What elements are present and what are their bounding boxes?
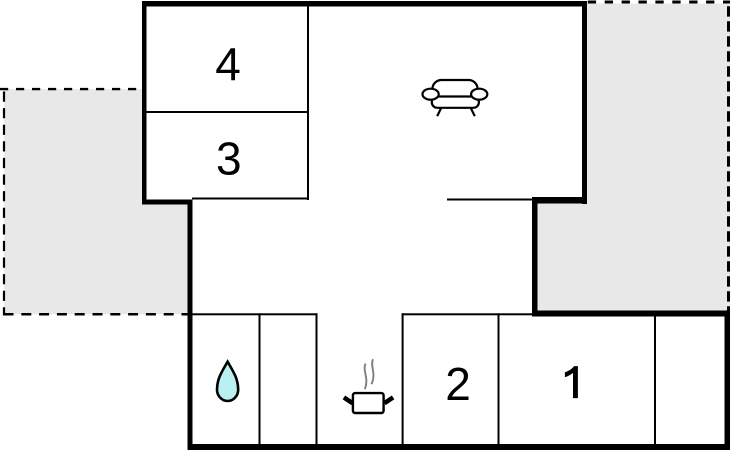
svg-text:2: 2 bbox=[445, 358, 471, 410]
svg-text:4: 4 bbox=[215, 38, 241, 90]
svg-text:3: 3 bbox=[216, 133, 242, 185]
